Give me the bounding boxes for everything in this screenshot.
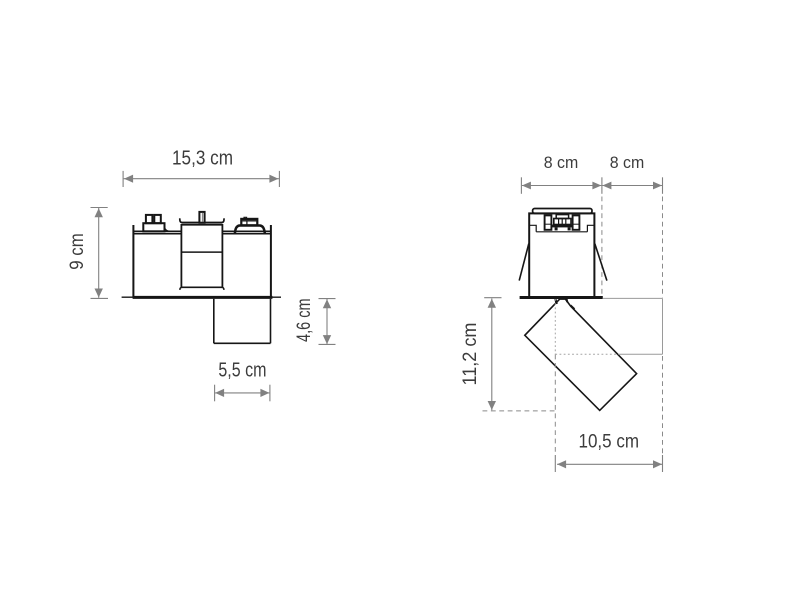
svg-text:9 cm: 9 cm xyxy=(67,233,88,270)
svg-text:10,5 cm: 10,5 cm xyxy=(579,431,640,453)
svg-text:8 cm: 8 cm xyxy=(610,153,645,172)
svg-text:11,2 cm: 11,2 cm xyxy=(459,323,481,386)
svg-text:15,3 cm: 15,3 cm xyxy=(172,147,233,169)
svg-text:5,5 cm: 5,5 cm xyxy=(218,360,266,382)
svg-text:4,6 cm: 4,6 cm xyxy=(294,298,315,342)
svg-text:8 cm: 8 cm xyxy=(544,153,579,172)
